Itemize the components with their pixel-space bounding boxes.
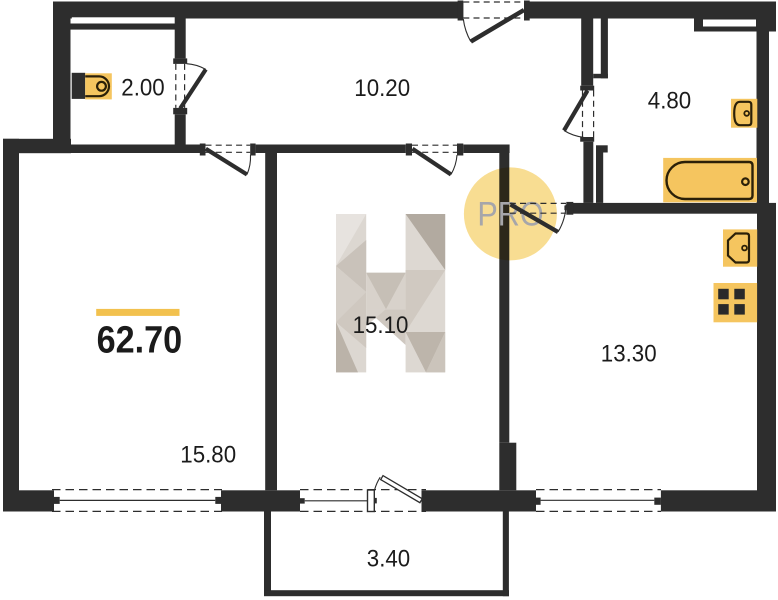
svg-text:15.10: 15.10 [353,311,409,338]
svg-text:3.40: 3.40 [367,545,410,572]
svg-text:PRO: PRO [477,195,543,233]
svg-text:15.80: 15.80 [180,441,236,468]
svg-text:10.20: 10.20 [354,74,410,101]
svg-text:13.30: 13.30 [601,340,657,367]
svg-text:62.70: 62.70 [97,318,183,361]
svg-text:2.00: 2.00 [121,74,164,101]
svg-text:4.80: 4.80 [648,87,691,114]
